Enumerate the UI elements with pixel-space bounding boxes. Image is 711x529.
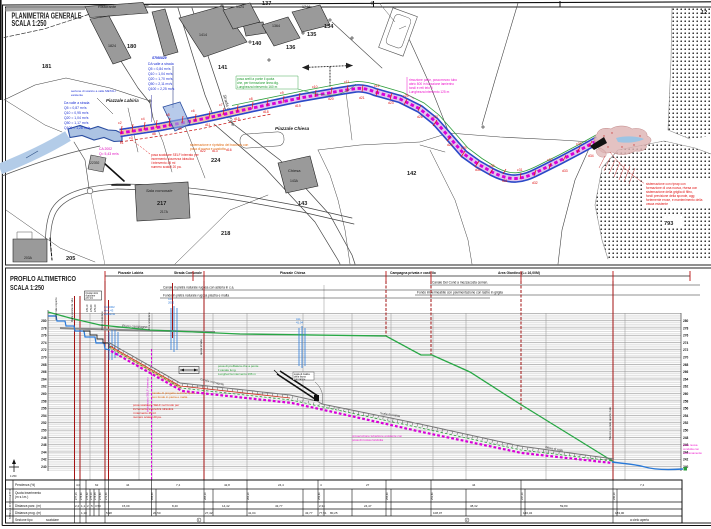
svg-text:254: 254 (41, 414, 47, 418)
svg-text:143: 143 (298, 201, 307, 207)
svg-text:274: 274 (683, 341, 689, 345)
svg-text:205: 205 (66, 256, 75, 262)
svg-text:d28: d28 (447, 143, 453, 147)
svg-text:275,92: 275,92 (86, 492, 89, 500)
svg-text:275,80: 275,80 (90, 304, 93, 312)
svg-text:Q100 = 2,25 m³/s: Q100 = 2,25 m³/s (148, 87, 175, 91)
svg-text:266: 266 (41, 370, 47, 374)
svg-text:Lunghezza intervento 166 m: Lunghezza intervento 166 m (218, 372, 256, 376)
svg-text:263,20: 263,20 (247, 492, 250, 500)
svg-text:136: 136 (286, 45, 295, 51)
svg-text:d32: d32 (532, 181, 538, 185)
svg-text:Sala comunale: Sala comunale (146, 188, 173, 193)
svg-text:Q10 = 0,95 m³/s: Q10 = 0,95 m³/s (64, 111, 89, 115)
svg-text:Q5 = 0,84 m³/s: Q5 = 0,84 m³/s (148, 67, 171, 71)
svg-text:240,20: 240,20 (613, 492, 616, 500)
svg-text:203A: 203A (24, 256, 33, 260)
svg-text:12: 12 (701, 10, 707, 16)
svg-text:276,10: 276,10 (86, 304, 89, 312)
svg-text:260: 260 (41, 392, 47, 396)
svg-text:1,10: 1,10 (81, 511, 87, 515)
svg-text:c1: c1 (120, 141, 124, 145)
svg-text:278: 278 (41, 326, 47, 330)
svg-text:180: 180 (127, 44, 136, 50)
svg-text:1,1: 1,1 (81, 504, 86, 508)
svg-text:273,60: 273,60 (99, 492, 102, 500)
svg-text:1414: 1414 (199, 33, 207, 37)
svg-text:272: 272 (683, 348, 689, 352)
svg-text:c10: c10 (312, 85, 318, 89)
svg-text:SCALA 1:250: SCALA 1:250 (12, 18, 47, 28)
svg-text:181: 181 (42, 64, 51, 70)
svg-text:SCALA 1:250: SCALA 1:250 (10, 285, 44, 292)
svg-text:242: 242 (683, 458, 689, 462)
svg-text:41,04: 41,04 (248, 511, 256, 515)
svg-text:2,34: 2,34 (319, 504, 325, 508)
svg-text:8,40: 8,40 (172, 504, 178, 508)
svg-text:Inizio riale coperto: Inizio riale coperto (54, 297, 58, 320)
svg-text:Q5 = 0,87 m³/s: Q5 = 0,87 m³/s (64, 106, 87, 110)
svg-text:27: 27 (366, 483, 370, 487)
svg-text:Pendenza (%): Pendenza (%) (15, 483, 35, 487)
svg-text:d33: d33 (562, 169, 568, 173)
svg-text:258: 258 (41, 399, 47, 403)
svg-text:274,35: 274,35 (94, 492, 97, 500)
svg-text:d18: d18 (263, 110, 269, 114)
svg-text:numero scatoli 20 pa.: numero scatoli 20 pa. (133, 415, 162, 419)
svg-text:risezionamento: risezionamento (683, 451, 702, 455)
svg-text:c30: c30 (489, 164, 495, 168)
svg-text:Lunghezza intervento 160 m: Lunghezza intervento 160 m (237, 85, 278, 89)
svg-text:272,90: 272,90 (105, 492, 108, 500)
svg-text:264: 264 (683, 377, 689, 381)
svg-text:217: 217 (157, 201, 166, 207)
svg-text:278: 278 (683, 326, 689, 330)
svg-text:140: 140 (252, 41, 261, 47)
svg-text:d19: d19 (295, 104, 301, 108)
svg-text:Campagna privata e castello: Campagna privata e castello (390, 271, 436, 275)
svg-text:183,00: 183,00 (615, 511, 625, 515)
svg-text:248: 248 (41, 436, 47, 440)
svg-text:77,91: 77,91 (319, 511, 327, 515)
svg-text:42,8: 42,8 (224, 483, 230, 487)
svg-text:15,09: 15,09 (122, 504, 130, 508)
svg-text:41,04: 41,04 (296, 321, 303, 325)
svg-text:276,80: 276,80 (80, 492, 83, 500)
svg-text:c27: c27 (433, 115, 439, 119)
svg-text:1744: 1744 (302, 5, 310, 9)
svg-text:Distanza parz. (m): Distanza parz. (m) (15, 504, 41, 508)
svg-text:Q100 = 1,28 m³/s: Q100 = 1,28 m³/s (64, 126, 91, 130)
svg-text:276: 276 (683, 334, 689, 338)
svg-text:265,10: 265,10 (204, 492, 207, 500)
svg-text:252,60: 252,60 (431, 492, 434, 500)
svg-text:Canale Del Cond a mezzacosta c: Canale Del Cond a mezzacosta cemen. (432, 281, 488, 285)
svg-text:d26: d26 (417, 115, 423, 119)
svg-text:2,2: 2,2 (75, 504, 80, 508)
svg-text:255,40: 255,40 (386, 492, 389, 500)
svg-text:Distanza prog. (m): Distanza prog. (m) (15, 511, 41, 515)
svg-text:793: 793 (664, 221, 673, 227)
svg-text:Ristorante: Ristorante (98, 4, 117, 9)
svg-text:d8: d8 (152, 132, 156, 136)
svg-text:esistente: esistente (104, 312, 116, 316)
svg-text:146,34: 146,34 (523, 511, 533, 515)
svg-text:Q20 = 1,04 m³/s: Q20 = 1,04 m³/s (64, 116, 89, 120)
svg-text:276: 276 (41, 334, 47, 338)
svg-text:275,20: 275,20 (94, 304, 97, 312)
svg-text:d20: d20 (328, 97, 334, 101)
svg-text:258: 258 (683, 399, 689, 403)
svg-text:80,25: 80,25 (330, 511, 338, 515)
svg-text:254: 254 (683, 414, 689, 418)
svg-text:c2: c2 (118, 121, 122, 125)
svg-text:Q10 = 1,04 m³/s: Q10 = 1,04 m³/s (148, 72, 173, 76)
svg-text:2002: 2002 (168, 301, 175, 305)
svg-text:24,47: 24,47 (364, 504, 372, 508)
svg-text:143A: 143A (290, 179, 299, 183)
svg-text:quota strada: quota strada (199, 339, 203, 355)
svg-text:c6: c6 (191, 109, 195, 113)
svg-text:242: 242 (41, 458, 47, 462)
svg-text:250: 250 (683, 429, 689, 433)
svg-text:esistente: esistente (71, 93, 83, 97)
svg-text:Strada Comunale: Strada Comunale (174, 271, 202, 275)
svg-text:posa di nuova condotta: posa di nuova condotta (352, 438, 383, 442)
svg-text:Riale esistente nda: Riale esistente nda (70, 298, 74, 322)
svg-text:d11: d11 (205, 123, 211, 127)
svg-text:240: 240 (41, 465, 47, 469)
svg-text:c32: c32 (547, 158, 553, 162)
svg-text:c4: c4 (141, 117, 145, 121)
svg-text:a cielo aperto: a cielo aperto (630, 518, 649, 522)
svg-text:5,98: 5,98 (106, 511, 112, 515)
svg-text:c12: c12 (374, 84, 380, 88)
svg-text:Canale in pietra naturale rugo: Canale in pietra naturale rugosa con ast… (163, 286, 234, 290)
svg-text:277,15: 277,15 (86, 297, 94, 300)
svg-text:S7I60029: S7I60029 (152, 56, 167, 60)
svg-text:22392: 22392 (90, 161, 100, 165)
svg-text:CA 2002: CA 2002 (99, 147, 112, 151)
svg-text:Q20 = 1,70 m³/s: Q20 = 1,70 m³/s (148, 77, 173, 81)
svg-text:d9: d9 (178, 127, 182, 131)
svg-text:Piazzale Labiria: Piazzale Labiria (118, 271, 143, 275)
svg-text:PROFILO ALTIMETRICO: PROFILO ALTIMETRICO (10, 276, 76, 283)
svg-text:con fondo in pietra e malta: con fondo in pietra e malta (152, 395, 188, 399)
svg-text:TABELLA DI PROGETTO: TABELLA DI PROGETTO (8, 489, 12, 519)
svg-text:14,42: 14,42 (222, 504, 230, 508)
svg-text:Fine scatolare: Fine scatolare (147, 312, 151, 330)
svg-text:244: 244 (41, 450, 47, 454)
svg-text:264: 264 (41, 377, 47, 381)
svg-text:4,0: 4,0 (76, 483, 81, 487)
svg-text:Inizio scatolare: Inizio scatolare (100, 311, 104, 330)
svg-text:275,10: 275,10 (90, 492, 93, 500)
svg-text:7,4: 7,4 (176, 483, 181, 487)
svg-text:142: 142 (407, 171, 416, 177)
svg-text:59,80: 59,80 (560, 504, 568, 508)
svg-text:c3: c3 (129, 136, 133, 140)
svg-text:Area Giardino (L= 16,00M): Area Giardino (L= 16,00M) (498, 271, 540, 275)
svg-text:108,07: 108,07 (433, 511, 443, 515)
svg-text:252: 252 (683, 421, 689, 425)
svg-text:Da valle a strada: Da valle a strada (64, 101, 90, 105)
svg-text:c8: c8 (249, 97, 253, 101)
svg-text:c5: c5 (166, 113, 170, 117)
svg-text:1364: 1364 (272, 24, 280, 28)
svg-text:Chiesa: Chiesa (288, 168, 301, 173)
svg-text:268,40: 268,40 (151, 492, 154, 500)
svg-text:con rampe: con rampe (294, 378, 306, 381)
svg-text:141: 141 (218, 65, 227, 71)
svg-text:44: 44 (126, 483, 130, 487)
svg-text:(m s.l.m.): (m s.l.m.) (15, 495, 28, 499)
svg-text:posa di nuova e condotta: posa di nuova e condotta (190, 147, 226, 151)
svg-text:d21: d21 (359, 96, 365, 100)
svg-text:259,80: 259,80 (318, 492, 321, 500)
svg-text:d34: d34 (588, 154, 594, 158)
svg-text:44: 44 (472, 483, 476, 487)
svg-text:224: 224 (211, 158, 221, 164)
svg-text:262: 262 (41, 385, 47, 389)
svg-text:137: 137 (262, 1, 271, 7)
svg-text:d31: d31 (502, 179, 508, 183)
svg-text:c9: c9 (280, 91, 284, 95)
svg-text:277,15: 277,15 (75, 492, 78, 500)
svg-text:Piazzale Chiesa: Piazzale Chiesa (275, 126, 310, 131)
svg-text:scatolare: scatolare (46, 518, 59, 522)
svg-text:280: 280 (41, 319, 47, 323)
svg-text:272: 272 (41, 348, 47, 352)
svg-text:262: 262 (683, 385, 689, 389)
svg-text:c29: c29 (461, 146, 467, 150)
svg-text:d30: d30 (475, 168, 481, 172)
svg-text:274: 274 (41, 341, 47, 345)
svg-text:20,50: 20,50 (153, 511, 161, 515)
svg-text:Fondo impermeabile con pavimen: Fondo impermeabile con pavimentazione co… (417, 291, 503, 295)
svg-text:Lunghezza intervento 125 m: Lunghezza intervento 125 m (409, 90, 450, 94)
svg-text:38,32: 38,32 (470, 504, 478, 508)
svg-text:260: 260 (683, 392, 689, 396)
svg-text:248: 248 (683, 436, 689, 440)
svg-text:266: 266 (683, 370, 689, 374)
svg-text:252: 252 (41, 421, 47, 425)
svg-text:135: 135 (307, 32, 316, 38)
svg-text:c11: c11 (344, 80, 349, 84)
svg-text:27,42: 27,42 (205, 511, 213, 515)
svg-text:numero scatoli 20 pa.: numero scatoli 20 pa. (151, 165, 182, 169)
svg-text:256: 256 (41, 407, 47, 411)
svg-text:Q= 5,43 m³/s: Q= 5,43 m³/s (99, 152, 119, 156)
svg-text:d16: d16 (226, 148, 232, 152)
svg-text:246: 246 (41, 443, 47, 447)
svg-text:280: 280 (683, 319, 689, 323)
svg-text:62: 62 (95, 483, 99, 487)
svg-text:Piazzale Labiria: Piazzale Labiria (106, 98, 139, 103)
svg-text:43,77: 43,77 (275, 504, 283, 508)
svg-text:270: 270 (683, 356, 689, 360)
svg-text:134: 134 (324, 24, 334, 30)
svg-text:DA valle a strada: DA valle a strada (148, 62, 174, 66)
svg-text:Piazzale Chiesa: Piazzale Chiesa (280, 271, 305, 275)
svg-text:247,10: 247,10 (521, 492, 524, 500)
svg-text:Q50 = 2,11 m³/s: Q50 = 2,11 m³/s (148, 82, 172, 86)
svg-text:24,4: 24,4 (278, 483, 284, 487)
svg-text:1824: 1824 (108, 44, 116, 48)
svg-text:Sezione tipo: Sezione tipo (15, 518, 33, 522)
svg-text:1:250: 1:250 (10, 474, 17, 478)
svg-text:218: 218 (221, 231, 230, 237)
svg-text:vasca esistente: vasca esistente (646, 202, 668, 206)
svg-text:d23: d23 (388, 101, 394, 105)
svg-text:c33: c33 (576, 142, 582, 146)
svg-text:270: 270 (41, 356, 47, 360)
svg-text:250: 250 (41, 429, 47, 433)
svg-text:43,77: 43,77 (305, 511, 313, 515)
svg-text:d15: d15 (234, 117, 240, 121)
svg-text:256: 256 (683, 407, 689, 411)
svg-text:3,50: 3,50 (95, 504, 101, 508)
svg-text:c7: c7 (219, 103, 223, 107)
svg-text:c31: c31 (517, 168, 523, 172)
svg-text:7,4: 7,4 (640, 483, 645, 487)
svg-text:Sbocco a cielo aperto riale: Sbocco a cielo aperto riale (608, 407, 612, 440)
svg-text:1424: 1424 (236, 5, 244, 9)
svg-text:268: 268 (41, 363, 47, 367)
svg-text:268: 268 (683, 363, 689, 367)
svg-text:Q50 = 1,17 m³/s: Q50 = 1,17 m³/s (64, 121, 89, 125)
svg-text:217A: 217A (160, 210, 169, 214)
